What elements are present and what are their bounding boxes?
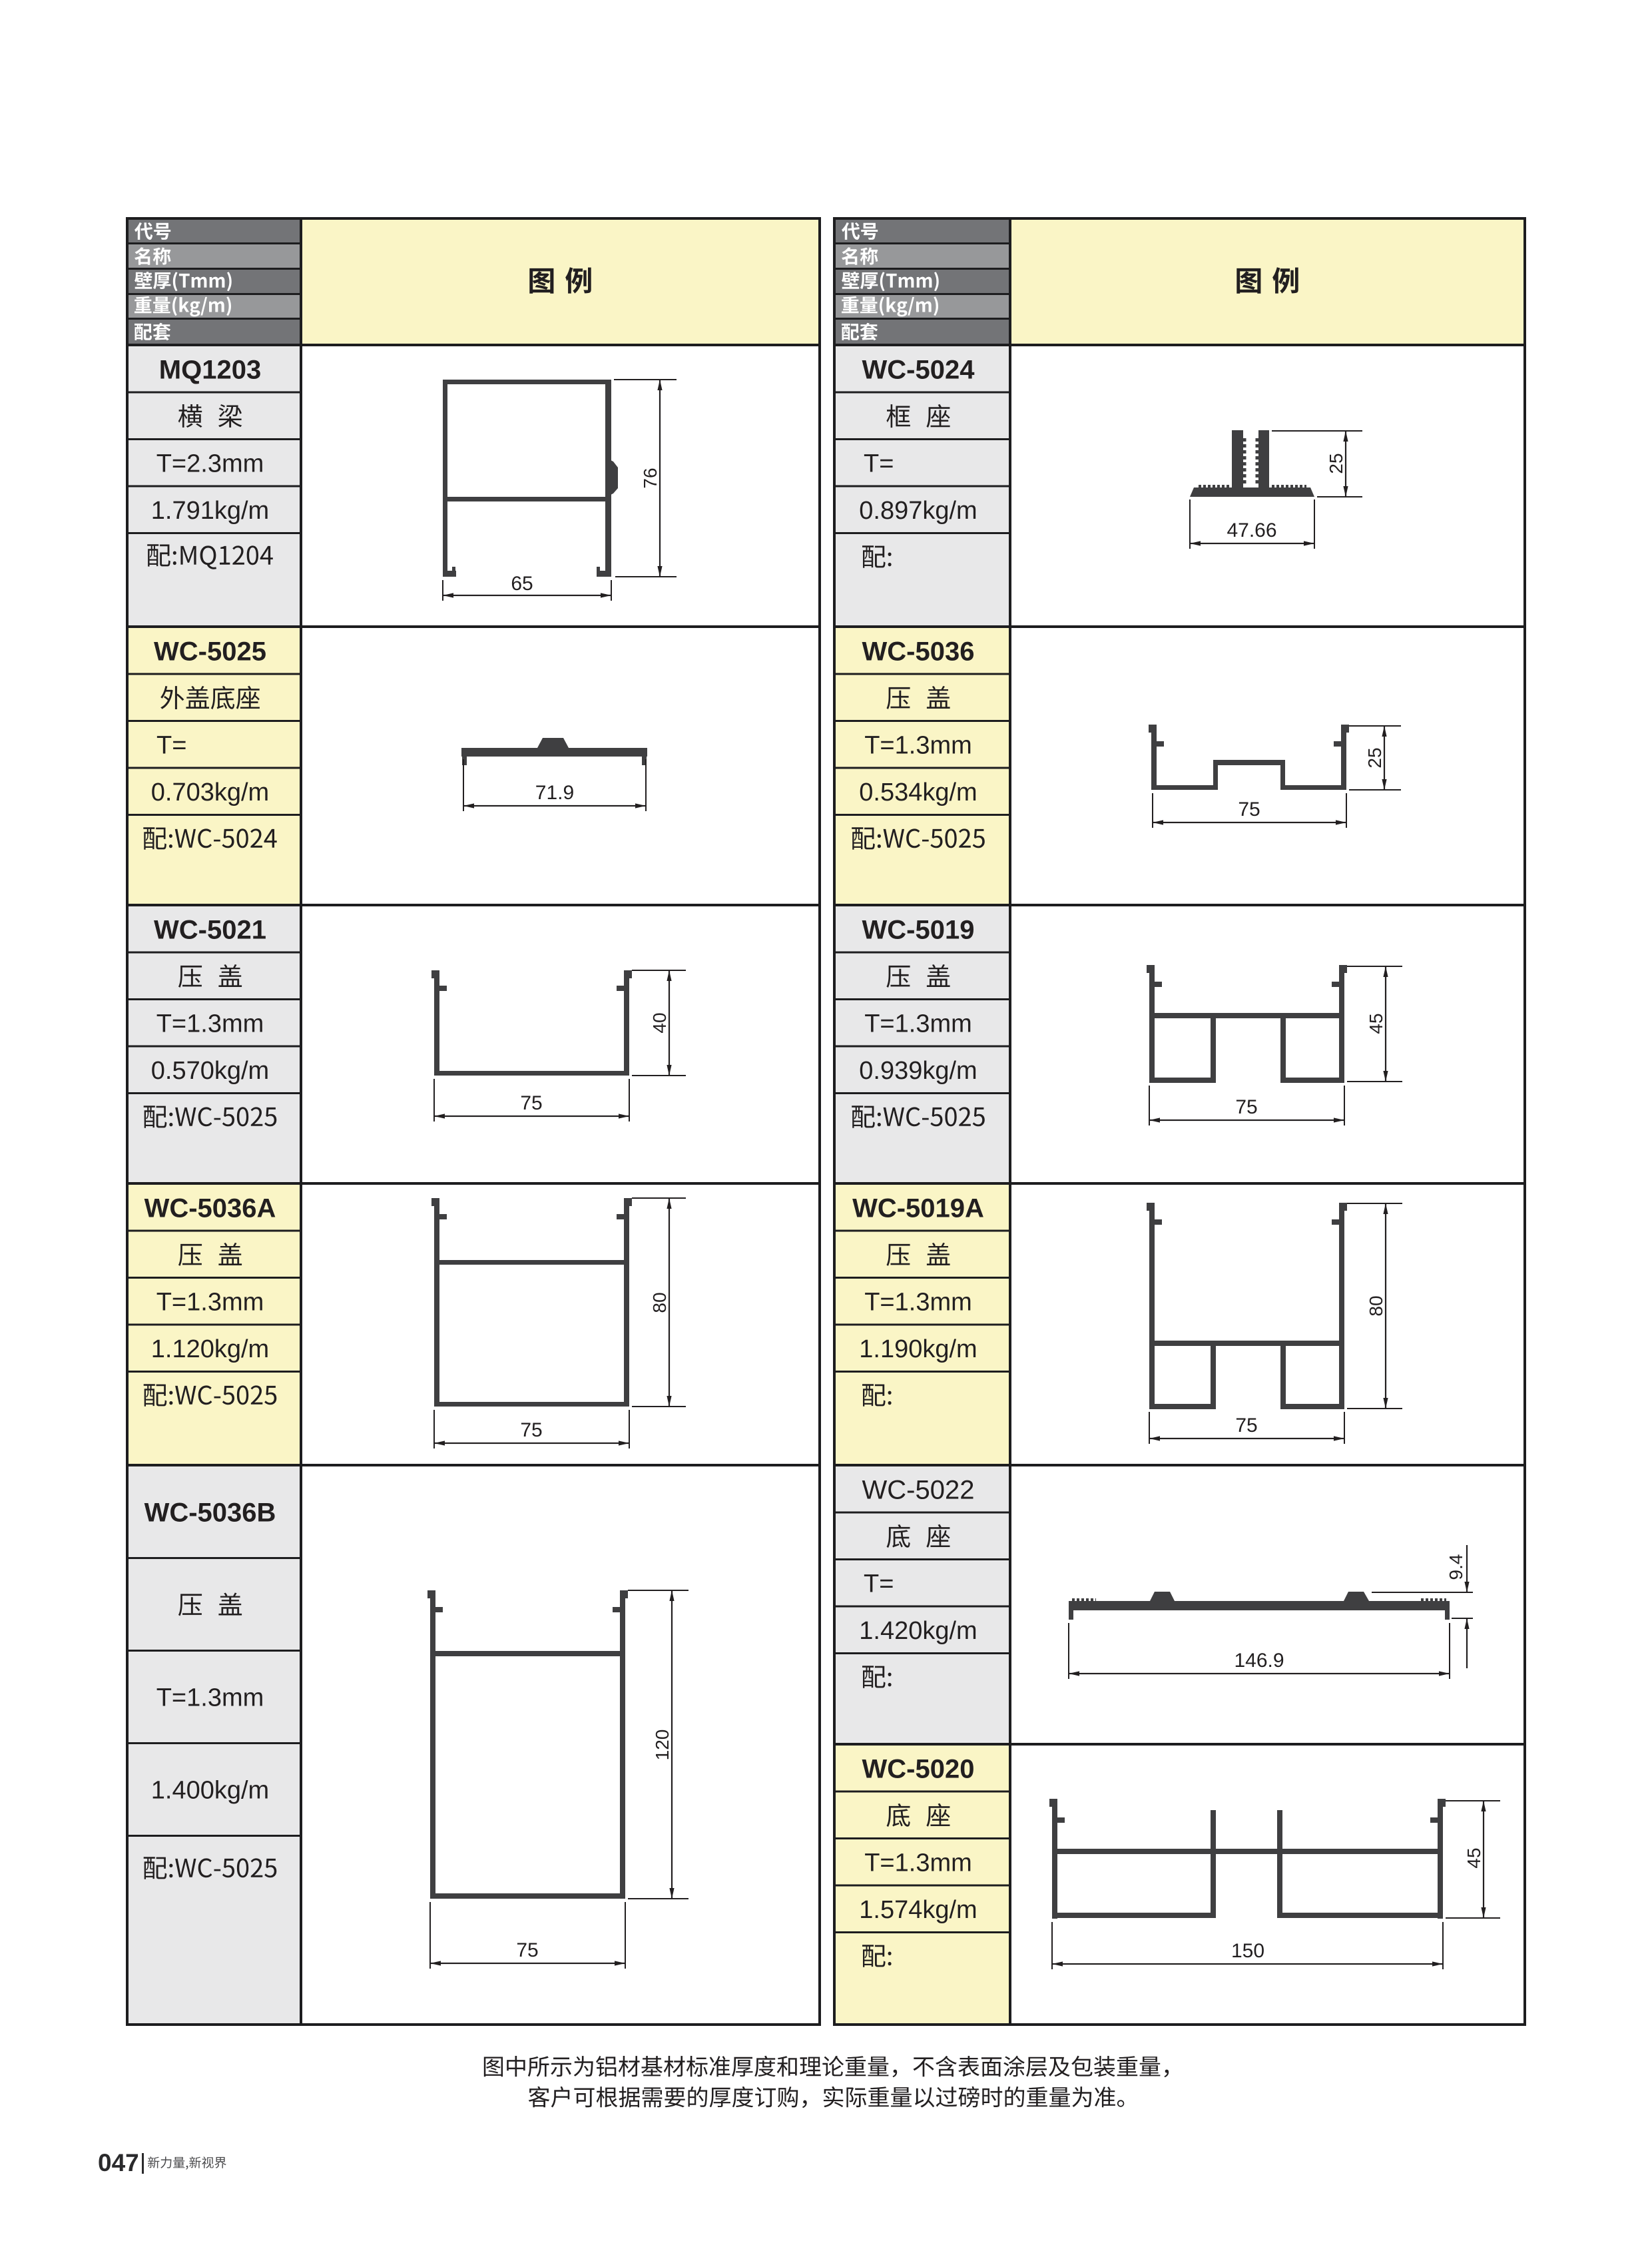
svg-text:T=1.3mm: T=1.3mm — [156, 1289, 264, 1317]
svg-text:0.570kg/m: 0.570kg/m — [151, 1057, 269, 1085]
svg-text:1.574kg/m: 1.574kg/m — [859, 1896, 977, 1924]
svg-text:1.120kg/m: 1.120kg/m — [151, 1335, 269, 1363]
svg-text:150: 150 — [1231, 1940, 1264, 1962]
svg-text:120: 120 — [652, 1730, 673, 1761]
svg-text:1.420kg/m: 1.420kg/m — [859, 1617, 977, 1645]
svg-text:WC-5021: WC-5021 — [154, 916, 266, 945]
svg-text:WC-5024: WC-5024 — [862, 356, 975, 385]
svg-text:0.939kg/m: 0.939kg/m — [859, 1057, 977, 1085]
svg-text:80: 80 — [1366, 1295, 1386, 1316]
svg-text:047: 047 — [98, 2149, 139, 2176]
svg-text:T=1.3mm: T=1.3mm — [864, 1289, 972, 1317]
svg-text:T=: T= — [864, 450, 894, 478]
svg-text:80: 80 — [649, 1292, 670, 1313]
svg-text:WC-5019A: WC-5019A — [852, 1194, 984, 1223]
svg-text:47.66: 47.66 — [1227, 519, 1276, 541]
svg-text:T=1.3mm: T=1.3mm — [864, 1010, 972, 1038]
svg-text:WC-5025: WC-5025 — [154, 637, 266, 667]
svg-text:T=1.3mm: T=1.3mm — [864, 732, 972, 760]
svg-text:1.190kg/m: 1.190kg/m — [859, 1335, 977, 1363]
svg-text:40: 40 — [649, 1012, 670, 1033]
svg-text:WC-5020: WC-5020 — [862, 1755, 975, 1784]
svg-text:WC-5036: WC-5036 — [862, 637, 975, 667]
svg-text:0.703kg/m: 0.703kg/m — [151, 779, 269, 806]
svg-text:75: 75 — [520, 1092, 542, 1114]
svg-text:WC-5036A: WC-5036A — [144, 1194, 276, 1223]
svg-text:75: 75 — [1235, 1415, 1257, 1437]
svg-text:T=2.3mm: T=2.3mm — [156, 450, 264, 478]
svg-text:WC-5036B: WC-5036B — [144, 1498, 276, 1528]
svg-text:0.897kg/m: 0.897kg/m — [859, 497, 977, 525]
svg-text:T=1.3mm: T=1.3mm — [156, 1010, 264, 1038]
svg-text:71.9: 71.9 — [535, 782, 574, 804]
svg-text:1.400kg/m: 1.400kg/m — [151, 1777, 269, 1805]
svg-text:75: 75 — [520, 1419, 542, 1441]
svg-text:25: 25 — [1364, 747, 1385, 768]
svg-text:0.534kg/m: 0.534kg/m — [859, 779, 977, 806]
svg-text:T=: T= — [156, 732, 186, 760]
svg-text:76: 76 — [640, 468, 661, 488]
svg-text:75: 75 — [1238, 799, 1260, 820]
svg-text:146.9: 146.9 — [1234, 1650, 1284, 1672]
svg-text:T=1.3mm: T=1.3mm — [156, 1684, 264, 1712]
svg-text:9.4: 9.4 — [1446, 1554, 1466, 1580]
svg-text:75: 75 — [1235, 1096, 1257, 1118]
svg-text:MQ1203: MQ1203 — [159, 356, 261, 385]
svg-text:WC-5022: WC-5022 — [862, 1476, 975, 1505]
svg-text:45: 45 — [1366, 1013, 1386, 1034]
svg-text:25: 25 — [1326, 453, 1346, 474]
svg-text:1.791kg/m: 1.791kg/m — [151, 497, 269, 525]
svg-text:45: 45 — [1464, 1847, 1484, 1868]
svg-text:WC-5019: WC-5019 — [862, 916, 975, 945]
svg-text:T=1.3mm: T=1.3mm — [864, 1849, 972, 1877]
svg-text:75: 75 — [516, 1939, 538, 1961]
svg-text:T=: T= — [864, 1570, 894, 1598]
svg-text:65: 65 — [511, 573, 533, 595]
